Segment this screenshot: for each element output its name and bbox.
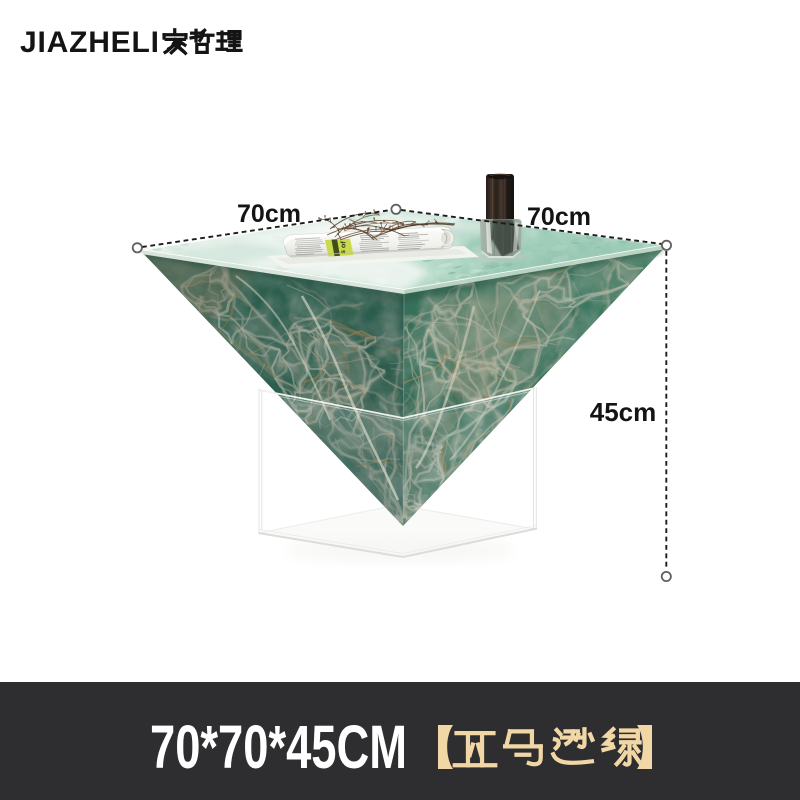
svg-text:s of: s of (340, 241, 348, 254)
svg-text:70cm: 70cm (237, 200, 301, 228)
svg-text:45cm: 45cm (590, 397, 657, 427)
svg-text:70cm: 70cm (527, 203, 591, 231)
svg-text:70*70*45CM: 70*70*45CM (150, 713, 407, 781)
